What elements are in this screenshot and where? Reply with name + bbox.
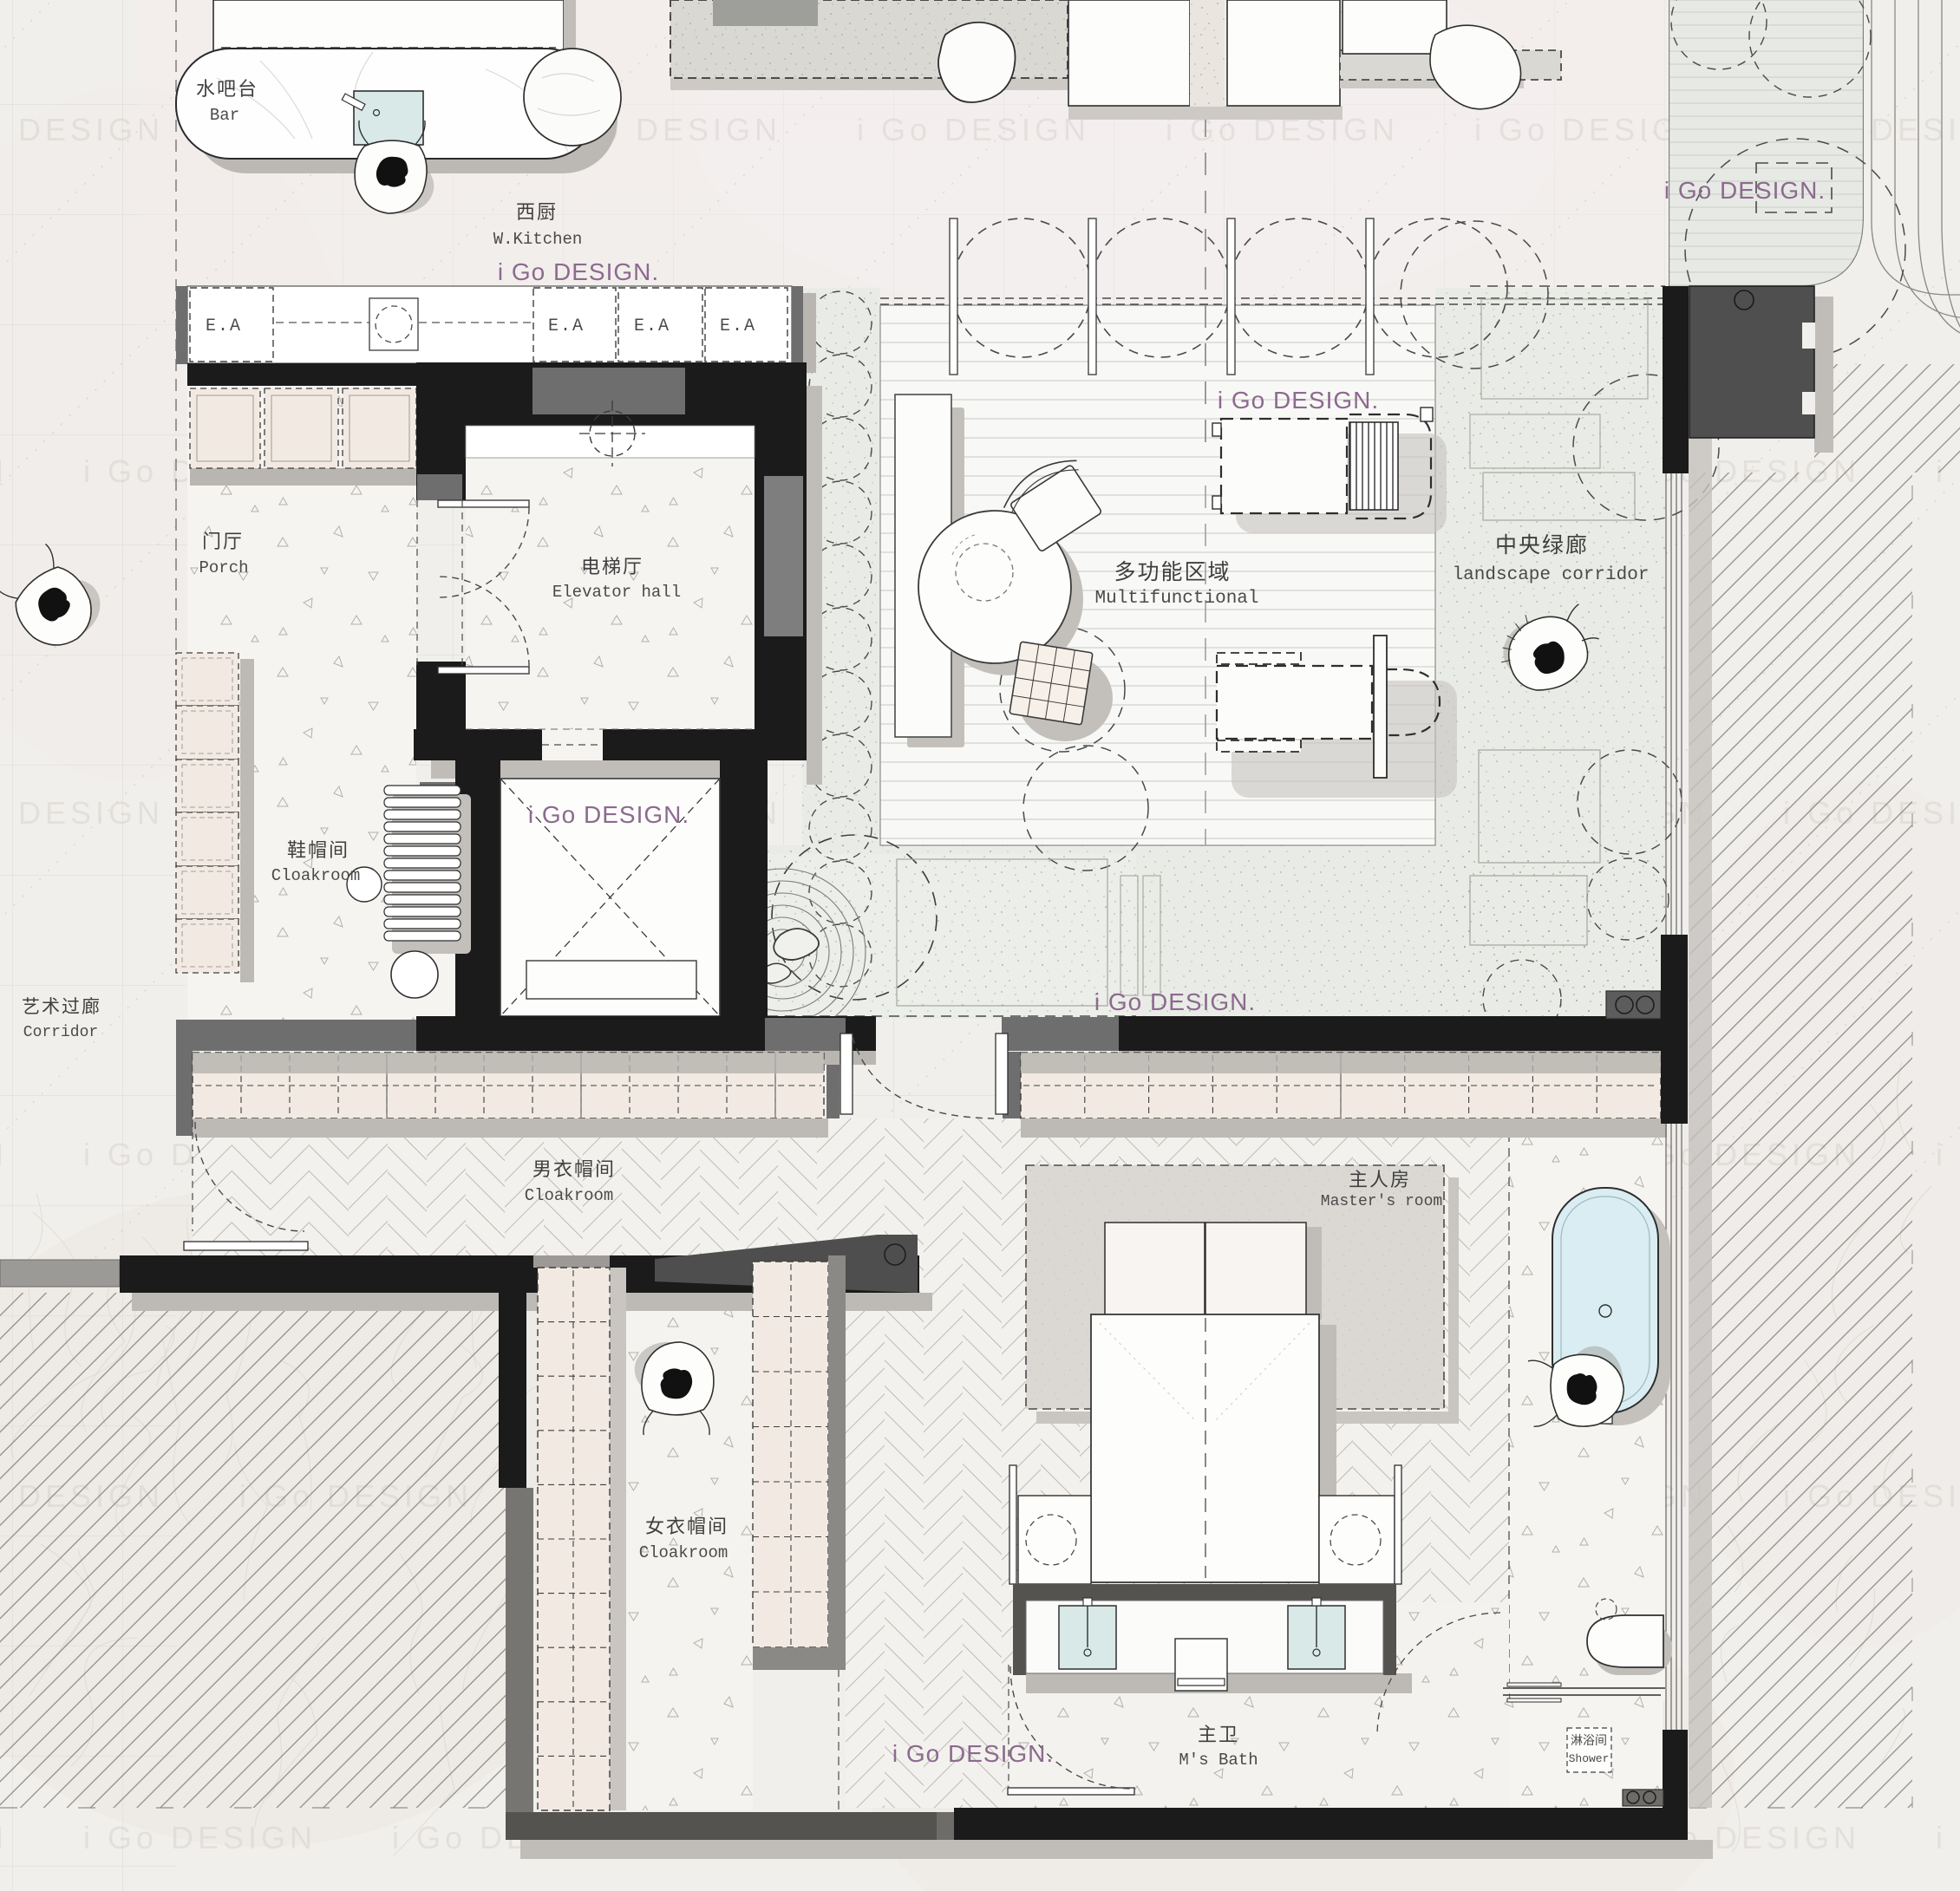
svg-text:i Go DESIGN: i Go DESIGN [0, 112, 164, 147]
svg-text:i Go DESIGN: i Go DESIGN [857, 112, 1090, 147]
svg-text:i Go DESIGN.: i Go DESIGN. [892, 1740, 1054, 1767]
svg-text:i Go DESIGN: i Go DESIGN [0, 1820, 8, 1855]
svg-text:i Go DESIGN: i Go DESIGN [0, 795, 164, 831]
svg-text:E.A: E.A [720, 316, 756, 336]
svg-text:门厅: 门厅 [202, 531, 244, 552]
svg-text:i Go DESIGN.: i Go DESIGN. [528, 801, 689, 828]
svg-text:鞋帽间: 鞋帽间 [287, 839, 350, 861]
svg-text:Porch: Porch [199, 558, 248, 577]
svg-text:Elevator hall: Elevator hall [552, 583, 681, 602]
svg-text:电梯厅: 电梯厅 [581, 556, 644, 577]
svg-text:Shower: Shower [1569, 1752, 1610, 1765]
svg-text:M's Bath: M's Bath [1179, 1751, 1258, 1770]
svg-text:i Go DESIGN.: i Go DESIGN. [1664, 177, 1826, 204]
svg-text:艺术过廊: 艺术过廊 [22, 997, 101, 1017]
svg-text:i Go DESIGN.: i Go DESIGN. [1218, 387, 1379, 414]
svg-text:Multifunctional: Multifunctional [1094, 589, 1258, 609]
svg-text:E.A: E.A [548, 316, 585, 336]
svg-text:landscape corridor: landscape corridor [1453, 565, 1650, 585]
svg-text:Cloakroom: Cloakroom [525, 1186, 614, 1205]
svg-text:Cloakroom: Cloakroom [639, 1543, 728, 1562]
svg-text:i Go DESIGN: i Go DESIGN [83, 1820, 317, 1855]
svg-text:主人房: 主人房 [1349, 1169, 1411, 1190]
svg-text:男衣帽间: 男衣帽间 [532, 1158, 616, 1180]
svg-text:多功能区域: 多功能区域 [1114, 560, 1231, 584]
svg-text:i Go DESIGN.: i Go DESIGN. [1094, 988, 1256, 1015]
svg-text:i Go DESIGN: i Go DESIGN [1936, 1137, 1960, 1172]
svg-text:淋浴间: 淋浴间 [1571, 1733, 1607, 1747]
svg-text:女衣帽间: 女衣帽间 [645, 1516, 728, 1537]
svg-text:i Go DESIGN: i Go DESIGN [0, 453, 8, 489]
svg-text:E.A: E.A [206, 316, 242, 336]
svg-text:E.A: E.A [634, 316, 670, 336]
svg-text:i Go DESIGN: i Go DESIGN [1936, 1820, 1960, 1855]
svg-text:Corridor: Corridor [23, 1024, 98, 1041]
svg-text:西厨: 西厨 [516, 201, 558, 223]
svg-text:中央绿廊: 中央绿廊 [1495, 533, 1589, 558]
svg-text:Cloakroom: Cloakroom [271, 866, 361, 885]
svg-text:Master's room: Master's room [1321, 1193, 1442, 1210]
svg-text:主卫: 主卫 [1198, 1724, 1239, 1745]
svg-text:Bar: Bar [210, 106, 239, 125]
svg-text:W.Kitchen: W.Kitchen [493, 230, 583, 249]
svg-text:i Go DESIGN.: i Go DESIGN. [498, 258, 659, 285]
svg-text:水吧台: 水吧台 [196, 78, 258, 100]
svg-text:i Go DESIGN: i Go DESIGN [0, 1137, 8, 1172]
